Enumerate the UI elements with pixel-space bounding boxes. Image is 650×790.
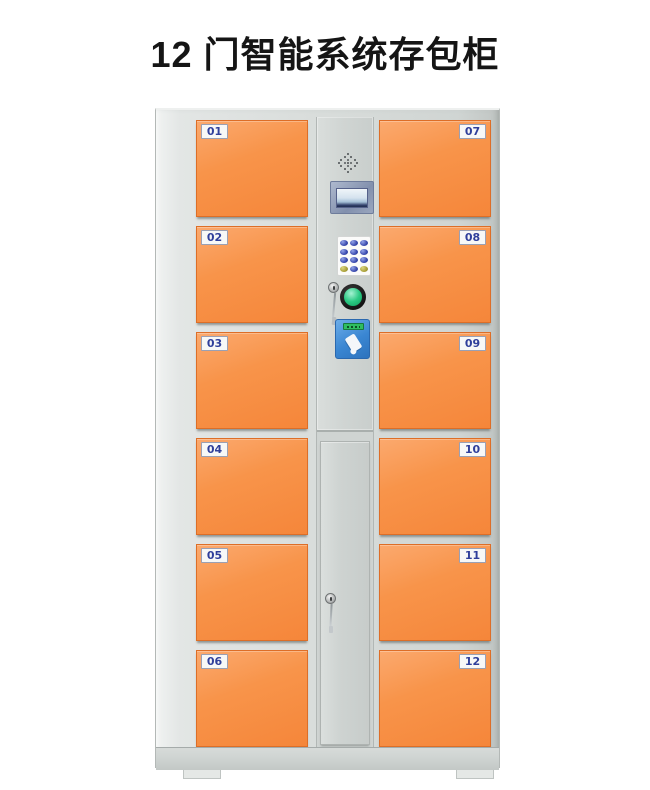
locker-door: 12 — [379, 650, 491, 747]
hanging-key-icon — [332, 293, 336, 319]
locker-cabinet: 01 02 03 04 05 06 07 08 09 10 11 12 — [155, 108, 500, 768]
door-number-label: 06 — [201, 654, 228, 669]
keypad-key — [350, 249, 358, 255]
door-number-label: 05 — [201, 548, 228, 563]
cabinet-base — [156, 747, 499, 770]
door-number-label: 08 — [459, 230, 486, 245]
confirm-button — [340, 284, 366, 310]
locker-door: 09 — [379, 332, 491, 429]
lcd-display — [330, 181, 374, 214]
locker-door: 10 — [379, 438, 491, 535]
locker-door: 03 — [196, 332, 308, 429]
key-lock-icon — [328, 282, 339, 293]
locker-door: 02 — [196, 226, 308, 323]
door-number-label: 07 — [459, 124, 486, 139]
door-number-label: 12 — [459, 654, 486, 669]
door-number-label: 10 — [459, 442, 486, 457]
door-number-label: 09 — [459, 336, 486, 351]
keypad-key — [360, 249, 368, 255]
lcd-screen — [336, 188, 368, 208]
locker-door: 07 — [379, 120, 491, 217]
door-number-label: 02 — [201, 230, 228, 245]
keypad-key — [350, 240, 358, 246]
control-panel — [317, 117, 373, 432]
keypad-key — [360, 257, 368, 263]
swipe-card-icon — [345, 333, 363, 352]
locker-door: 05 — [196, 544, 308, 641]
hanging-key-icon — [329, 626, 333, 633]
card-reader — [335, 319, 370, 359]
service-door — [320, 441, 370, 745]
door-number-label: 01 — [201, 124, 228, 139]
door-number-label: 04 — [201, 442, 228, 457]
keypad-key — [340, 266, 348, 272]
hanging-key-icon — [329, 604, 332, 628]
numeric-keypad — [337, 236, 371, 276]
cabinet-foot — [183, 770, 221, 779]
locker-door: 01 — [196, 120, 308, 217]
locker-door: 04 — [196, 438, 308, 535]
door-number-label: 03 — [201, 336, 228, 351]
cabinet-foot — [456, 770, 494, 779]
locker-door: 08 — [379, 226, 491, 323]
confirm-button-cap — [344, 288, 362, 306]
keypad-key — [360, 240, 368, 246]
locker-door: 11 — [379, 544, 491, 641]
speaker-icon — [347, 162, 349, 164]
card-reader-display — [343, 323, 364, 330]
keypad-key — [350, 266, 358, 272]
key-lock-icon — [325, 593, 336, 604]
door-number-label: 11 — [459, 548, 486, 563]
keypad-key — [340, 249, 348, 255]
control-column — [316, 117, 374, 747]
keypad-key — [340, 257, 348, 263]
page-title: 12 门智能系统存包柜 — [0, 26, 650, 78]
locker-door: 06 — [196, 650, 308, 747]
keypad-key — [350, 257, 358, 263]
keypad-key — [360, 266, 368, 272]
keypad-key — [340, 240, 348, 246]
